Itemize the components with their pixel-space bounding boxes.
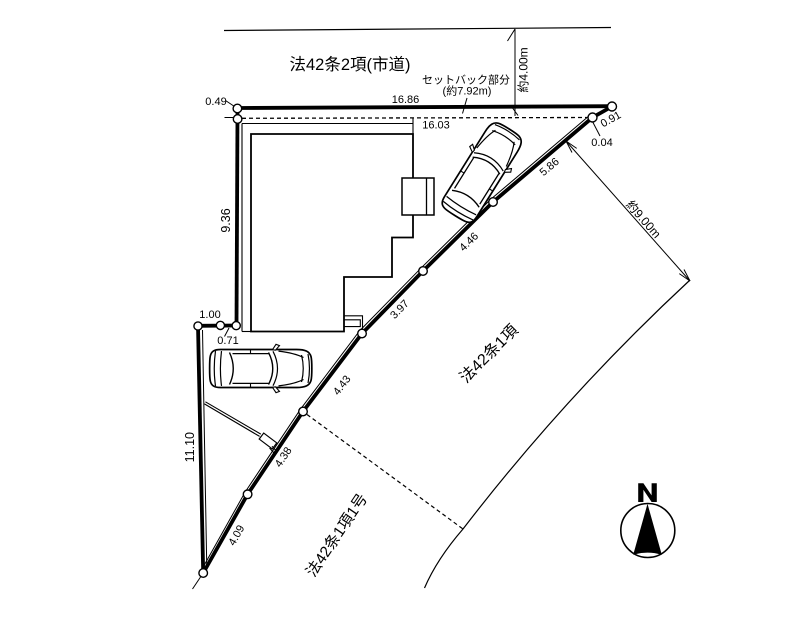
svg-text:16.03: 16.03 [422,120,450,132]
svg-text:16.86: 16.86 [392,94,420,106]
svg-text:(約7.92m): (約7.92m) [443,84,492,98]
svg-text:1.00: 1.00 [199,309,220,321]
svg-text:11.10: 11.10 [183,432,197,462]
svg-text:9.36: 9.36 [219,208,233,232]
svg-text:0.49: 0.49 [205,96,226,108]
svg-text:法42条2項(市道): 法42条2項(市道) [289,55,410,74]
svg-text:約4.00m: 約4.00m [516,47,531,92]
svg-text:セットバック部分: セットバック部分 [422,73,510,87]
svg-text:0.71: 0.71 [217,335,238,347]
svg-text:0.04: 0.04 [591,137,612,149]
